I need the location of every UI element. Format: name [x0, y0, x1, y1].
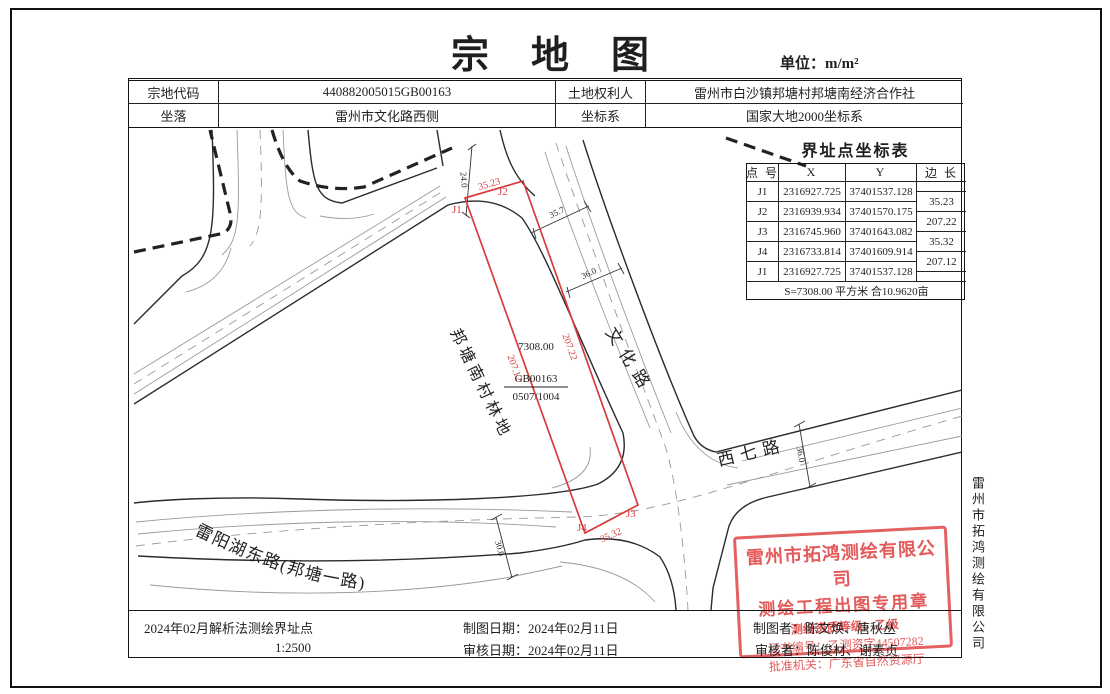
dim-label-xiqi-width: 36.0 — [795, 446, 808, 464]
coord-x: 2316927.725 — [779, 182, 846, 202]
edge-value: 207.22 — [917, 212, 966, 232]
side-company-name: 雷州市拓鸿测绘有限公司 — [968, 476, 987, 676]
info-value-parcel-code: 440882005015GB00163 — [219, 81, 556, 104]
info-value-location: 雷州市文化路西侧 — [219, 104, 556, 127]
point-label-j4: J4 — [577, 522, 587, 534]
land-use-label: 邦塘南村林地 — [446, 326, 515, 442]
info-label-coord-system: 坐标系 — [556, 104, 646, 127]
road-label-xiqi: 西七路 — [716, 436, 788, 470]
edge-value: 35.32 — [917, 232, 966, 252]
coord-point: J1 — [747, 182, 779, 202]
point-label-j1: J1 — [452, 204, 462, 216]
edge-length-right: 207.22 — [559, 332, 579, 362]
coord-header-y: Y — [846, 164, 917, 182]
parcel-sheet-label: 0507/1004 — [512, 391, 560, 403]
edge-value: 35.23 — [917, 192, 966, 212]
coord-header-edge: 边 长 — [917, 164, 966, 182]
draw-date: 制图日期：2024年02月11日 — [463, 618, 619, 637]
edge-value: 207.12 — [917, 252, 966, 272]
info-value-coord-system: 国家大地2000坐标系 — [646, 104, 963, 127]
footer-strip: 2024年02月解析法测绘界址点 1:2500 制图日期：2024年02月11日… — [128, 610, 962, 658]
coord-y: 37401643.082 — [846, 222, 917, 242]
coord-header-point: 点 号 — [747, 164, 779, 182]
coord-y: 37401537.128 — [846, 182, 917, 202]
coord-header-x: X — [779, 164, 846, 182]
coord-y: 37401609.914 — [846, 242, 917, 262]
dim-label-24: 24.0 — [458, 171, 469, 188]
coord-x: 2316733.814 — [779, 242, 846, 262]
coord-y: 37401570.175 — [846, 202, 917, 222]
coord-x: 2316745.960 — [779, 222, 846, 242]
coord-table-title: 界址点坐标表 — [768, 137, 943, 161]
survey-method-note: 2024年02月解析法测绘界址点 — [144, 618, 313, 637]
edge-spacer — [917, 272, 966, 282]
point-label-j3: J3 — [626, 508, 636, 520]
dim-label-wenhua-width: 36.0 — [579, 265, 598, 281]
parcel-boundary — [465, 181, 638, 533]
review-date: 审核日期：2024年02月11日 — [463, 640, 619, 659]
point-label-j2: J2 — [498, 186, 508, 198]
coord-point: J2 — [747, 202, 779, 222]
info-label-right-holder: 土地权利人 — [556, 81, 646, 104]
coord-x: 2316927.725 — [779, 262, 846, 282]
drafter: 制图者：陈文焕、唐秋丛 — [753, 618, 896, 637]
parcel-area-label: 7308.00 — [518, 341, 554, 353]
reviewer: 审核者：陈俊材、谢素贞 — [755, 640, 898, 659]
page-title: 宗地图 — [400, 24, 700, 79]
edge-spacer — [917, 182, 966, 192]
area-note: S=7308.00 平方米 合10.9620亩 — [747, 282, 966, 299]
coord-x: 2316939.934 — [779, 202, 846, 222]
map-scale: 1:2500 — [218, 640, 368, 656]
coord-point: J1 — [747, 262, 779, 282]
info-value-right-holder: 雷州市白沙镇邦塘村邦塘南经济合作社 — [646, 81, 963, 104]
coord-point: J3 — [747, 222, 779, 242]
parcel-info-table: 宗地代码 440882005015GB00163 土地权利人 雷州市白沙镇邦塘村… — [128, 80, 962, 128]
edge-length-bottom: 35.32 — [598, 526, 623, 545]
coord-y: 37401537.128 — [846, 262, 917, 282]
coord-point: J4 — [747, 242, 779, 262]
unit-label: 单位：m/m² — [780, 52, 859, 73]
info-label-location: 坐落 — [129, 104, 219, 127]
parcel-code-label: GB00163 — [515, 373, 558, 385]
info-label-parcel-code: 宗地代码 — [129, 81, 219, 104]
parcel-point-labels: J1 J2 J3 J4 35.23 207.22 207.12 35.32 — [452, 176, 636, 545]
road-label-wenhua: 文化路 — [602, 324, 658, 398]
coord-table: 点 号 X Y 边 长 J1 2316927.725 37401537.128 … — [746, 163, 965, 300]
